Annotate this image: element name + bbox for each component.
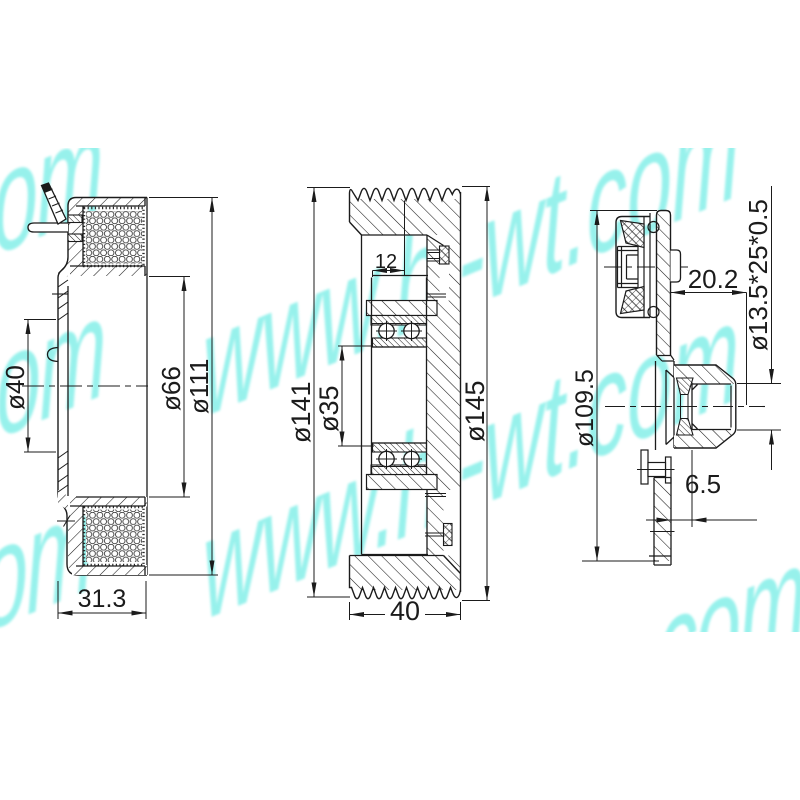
svg-text:ø40: ø40 xyxy=(0,365,30,410)
svg-text:12: 12 xyxy=(375,251,397,273)
svg-text:ø13.5*25*0.5: ø13.5*25*0.5 xyxy=(743,199,773,351)
svg-text:20.2: 20.2 xyxy=(688,264,739,294)
svg-text:31.3: 31.3 xyxy=(78,585,127,613)
svg-text:ø111: ø111 xyxy=(184,359,214,414)
svg-text:ø141: ø141 xyxy=(286,381,316,443)
svg-text:6.5: 6.5 xyxy=(685,469,721,499)
svg-text:ø109.5: ø109.5 xyxy=(571,369,599,447)
svg-text:40: 40 xyxy=(390,596,420,626)
svg-text:ø145: ø145 xyxy=(460,380,490,442)
svg-text:ø66: ø66 xyxy=(156,366,186,411)
svg-text:ø35: ø35 xyxy=(314,385,344,432)
